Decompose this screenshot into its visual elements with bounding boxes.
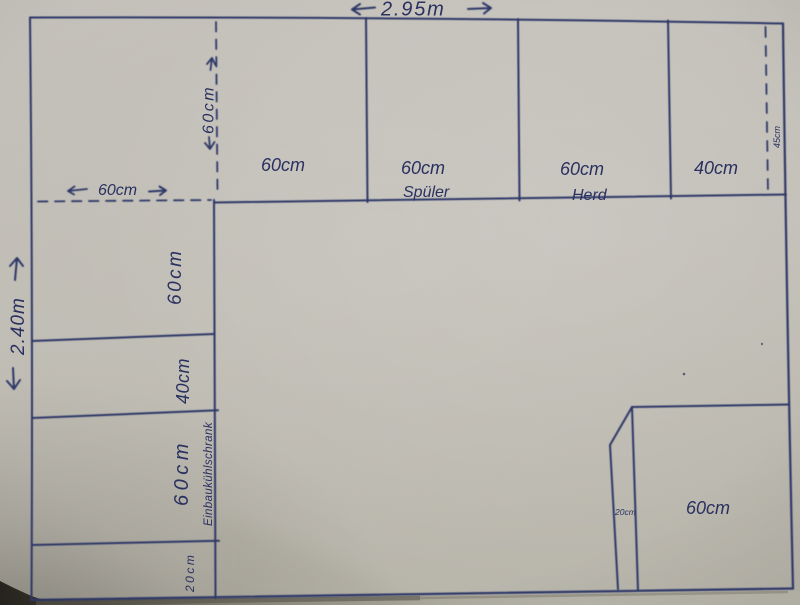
svg-text:20cm: 20cm <box>614 507 636 517</box>
svg-text:60cm: 60cm <box>171 439 193 506</box>
svg-text:60cm: 60cm <box>261 155 305 175</box>
svg-text:40cm: 40cm <box>694 158 738 178</box>
svg-text:Spüler: Spüler <box>403 184 450 201</box>
svg-text:60cm: 60cm <box>401 158 445 178</box>
svg-text:Einbaukühlschrank: Einbaukühlschrank <box>203 421 215 526</box>
svg-text:2.95m: 2.95m <box>380 0 446 21</box>
svg-text:45cm: 45cm <box>772 125 782 148</box>
svg-text:60cm: 60cm <box>560 159 604 179</box>
svg-text:60cm: 60cm <box>165 249 186 305</box>
svg-text:2.40m: 2.40m <box>8 297 29 356</box>
svg-text:60cm: 60cm <box>201 85 218 134</box>
svg-text:20cm: 20cm <box>183 553 197 593</box>
svg-text:40cm: 40cm <box>173 358 193 404</box>
svg-text:Herd: Herd <box>572 187 608 204</box>
svg-text:60cm: 60cm <box>98 182 137 199</box>
svg-text:60cm: 60cm <box>686 498 730 518</box>
